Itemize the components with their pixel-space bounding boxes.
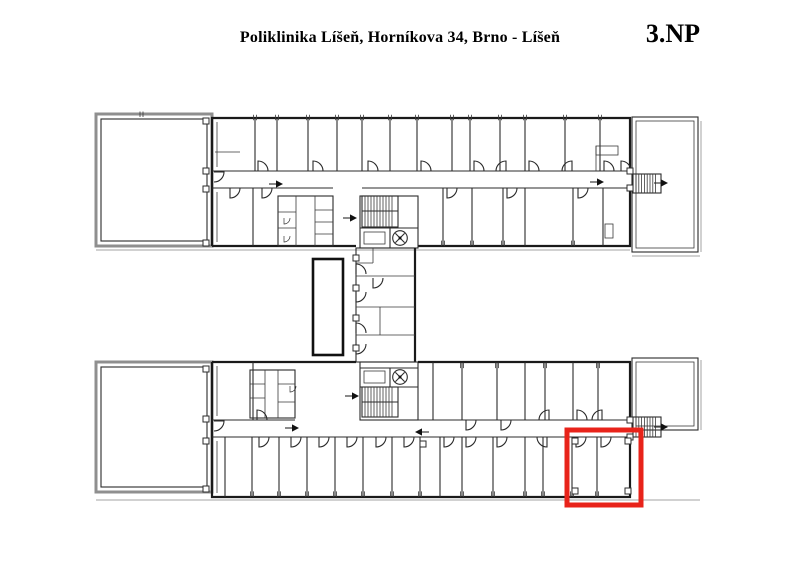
door-arc-icon — [259, 437, 269, 447]
door-arc-icon — [376, 437, 386, 447]
stairwell-top — [360, 196, 418, 248]
column-post-icon — [572, 438, 578, 444]
direction-arrow-icon — [345, 392, 359, 399]
door-arc-icon — [562, 161, 572, 171]
room-dividers-bottom-upper — [253, 362, 598, 420]
column-post-icon — [203, 168, 209, 174]
room-dividers-bottom-lower — [225, 437, 597, 497]
connector-wing — [356, 248, 415, 362]
door-arc-icon — [537, 437, 547, 447]
door-arc-icon — [501, 420, 511, 430]
doors — [214, 161, 631, 447]
corridor-walls-top — [212, 171, 630, 188]
column-post-icon — [203, 118, 209, 124]
column-post-icon — [627, 168, 633, 174]
door-arc-icon — [319, 437, 329, 447]
door-arc-icon — [373, 278, 383, 288]
direction-arrow-icon — [343, 214, 357, 221]
column-post-icon — [353, 255, 359, 261]
door-arc-icon — [466, 420, 476, 430]
column-post-icon — [203, 240, 209, 246]
door-arc-icon — [474, 161, 484, 171]
door-arc-icon — [291, 437, 301, 447]
door-arc-icon — [356, 264, 366, 274]
door-arc-icon — [214, 172, 224, 182]
door-arc-icon — [347, 437, 357, 447]
corridor-arrows — [269, 178, 604, 435]
column-post-icon — [625, 438, 631, 444]
door-arc-icon — [421, 161, 431, 171]
shaft — [313, 259, 343, 355]
direction-arrow-icon — [590, 178, 604, 185]
direction-arrow-icon — [285, 424, 299, 431]
fire-stairs-bottom-right — [633, 417, 668, 437]
direction-arrow-icon — [654, 179, 668, 186]
door-arc-icon — [497, 437, 507, 447]
column-post-icon — [203, 486, 209, 492]
terrace-bottom-left — [96, 362, 212, 492]
door-arc-icon — [496, 161, 506, 171]
door-arc-icon — [447, 188, 457, 198]
fire-stairs-top-right — [633, 174, 668, 193]
cabinet — [605, 224, 613, 238]
column-post-icon — [627, 185, 633, 191]
door-arc-icon — [444, 437, 454, 447]
terrace-top-left — [96, 112, 212, 247]
door-arc-icon — [284, 218, 290, 224]
column-post-icon — [203, 416, 209, 422]
elevator-fan-icon — [393, 370, 408, 385]
column-post-icon — [203, 366, 209, 372]
column-post-icon — [353, 345, 359, 351]
door-arc-icon — [313, 161, 323, 171]
shadow-lines — [96, 121, 701, 500]
door-arc-icon — [466, 437, 476, 447]
door-arc-icon — [601, 437, 611, 447]
door-arc-icon — [507, 188, 517, 198]
counter-desk — [596, 146, 618, 155]
stairwell-bottom — [360, 362, 418, 420]
column-post-icon — [625, 488, 631, 494]
column-post-icon — [572, 488, 578, 494]
top-wing — [212, 118, 630, 246]
window-ticks — [251, 115, 602, 497]
door-arc-icon — [284, 236, 290, 242]
door-arc-icon — [578, 188, 588, 198]
column-post-icon — [353, 315, 359, 321]
elevator-fan-icon — [393, 231, 408, 246]
column-post-icon — [420, 441, 426, 447]
room-dividers-top-lower — [253, 188, 603, 246]
door-arc-icon — [404, 437, 414, 447]
direction-arrow-icon — [269, 180, 283, 187]
door-arc-icon — [356, 323, 366, 333]
door-arc-icon — [604, 161, 614, 171]
page: Poliklinika Líšeň, Horníkova 34, Brno - … — [0, 0, 800, 563]
door-arc-icon — [529, 161, 539, 171]
floor-plan — [0, 0, 800, 563]
door-arc-icon — [577, 410, 587, 420]
column-post-icon — [353, 285, 359, 291]
door-arc-icon — [539, 410, 549, 420]
door-arc-icon — [258, 161, 268, 171]
column-post-icon — [627, 417, 633, 423]
door-arc-icon — [592, 410, 602, 420]
direction-arrow-icon — [415, 428, 429, 435]
door-arc-icon — [368, 161, 378, 171]
door-arc-icon — [262, 188, 272, 198]
door-arc-icon — [214, 421, 224, 431]
wc-cluster-top — [278, 196, 333, 246]
column-post-icon — [203, 186, 209, 192]
door-arc-icon — [230, 188, 240, 198]
column-post-icon — [203, 438, 209, 444]
door-arc-icon — [356, 292, 366, 302]
